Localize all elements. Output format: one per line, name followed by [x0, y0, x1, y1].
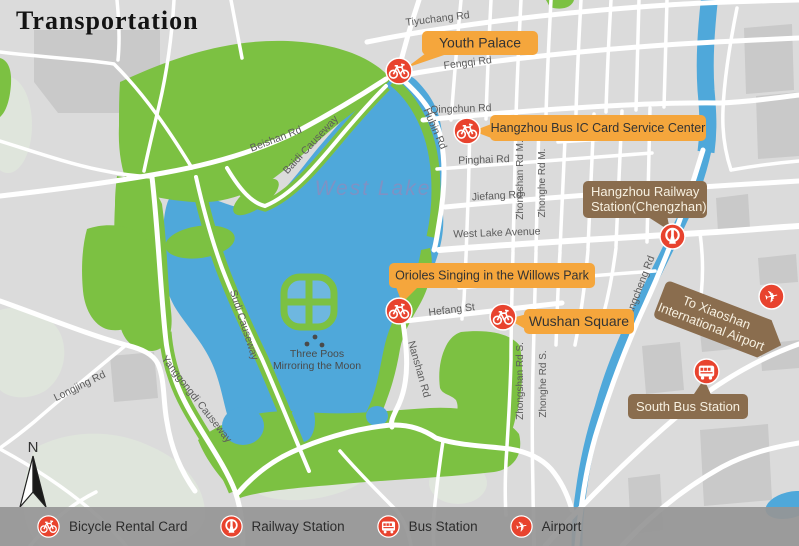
marker-bicycle-bus-ic[interactable]	[454, 118, 480, 144]
bicycle-rental-legend-icon	[37, 515, 60, 538]
marker-railway-station[interactable]	[660, 224, 685, 249]
legend-label-bicycle: Bicycle Rental Card	[69, 519, 188, 534]
callout-bus-ic-card[interactable]: Hangzhou Bus IC Card Service Center	[473, 115, 706, 141]
svg-text:South Bus Station: South Bus Station	[636, 399, 740, 414]
marker-airport[interactable]	[759, 284, 784, 309]
map-canvas[interactable]: ✈	[0, 0, 799, 546]
legend-label-airport: Airport	[542, 519, 582, 534]
svg-text:Orioles Singing in the Willows: Orioles Singing in the Willows Park	[395, 269, 590, 283]
page-title: Transportation	[16, 6, 199, 36]
bus-legend-icon	[377, 515, 400, 538]
compass-n-label: N	[28, 439, 39, 456]
legend-bar: Bicycle Rental Card Railway Station Bus …	[0, 507, 799, 546]
island-label-line2: Mirroring the Moon	[273, 360, 361, 372]
road-label-zhongshan-m: Zhongshan Rd M.	[515, 140, 526, 220]
road-label-qingchun: Qingchun Rd	[430, 102, 492, 116]
road-label-zhonghe-m: Zhonghe Rd M.	[537, 149, 548, 218]
legend-label-railway: Railway Station	[252, 519, 345, 534]
legend-item-bicycle: Bicycle Rental Card	[37, 515, 188, 538]
road-label-zhonghe-s: Zhonghe Rd S.	[538, 350, 549, 417]
legend-item-bus: Bus Station	[377, 515, 478, 538]
marker-south-bus-station[interactable]	[694, 359, 719, 384]
svg-text:Youth Palace: Youth Palace	[439, 35, 521, 51]
lake-name-label: West Lake	[315, 177, 432, 200]
road-label-zhongshan-s: Zhongshan Rd S.	[515, 342, 526, 420]
legend-label-bus: Bus Station	[409, 519, 478, 534]
airport-legend-icon	[510, 515, 533, 538]
road-label-pinghai: Pinghai Rd	[458, 153, 510, 167]
railway-legend-icon	[220, 515, 243, 538]
marker-bicycle-orioles[interactable]	[386, 298, 412, 324]
transportation-map-page: ✈	[0, 0, 799, 546]
marker-bicycle-youth-palace[interactable]	[386, 58, 412, 84]
island-label-line1: Three Poos	[290, 348, 344, 360]
svg-text:Hangzhou Bus IC Card Service C: Hangzhou Bus IC Card Service Center	[491, 121, 706, 135]
marker-bicycle-wushan[interactable]	[490, 304, 516, 330]
svg-text:Hangzhou Railway: Hangzhou Railway	[591, 184, 700, 199]
svg-text:Wushan Square: Wushan Square	[529, 313, 629, 329]
svg-text:Station(Chengzhan): Station(Chengzhan)	[591, 199, 707, 214]
callout-wushan-square[interactable]: Wushan Square	[508, 309, 634, 334]
legend-item-airport: Airport	[510, 515, 582, 538]
legend-item-railway: Railway Station	[220, 515, 345, 538]
